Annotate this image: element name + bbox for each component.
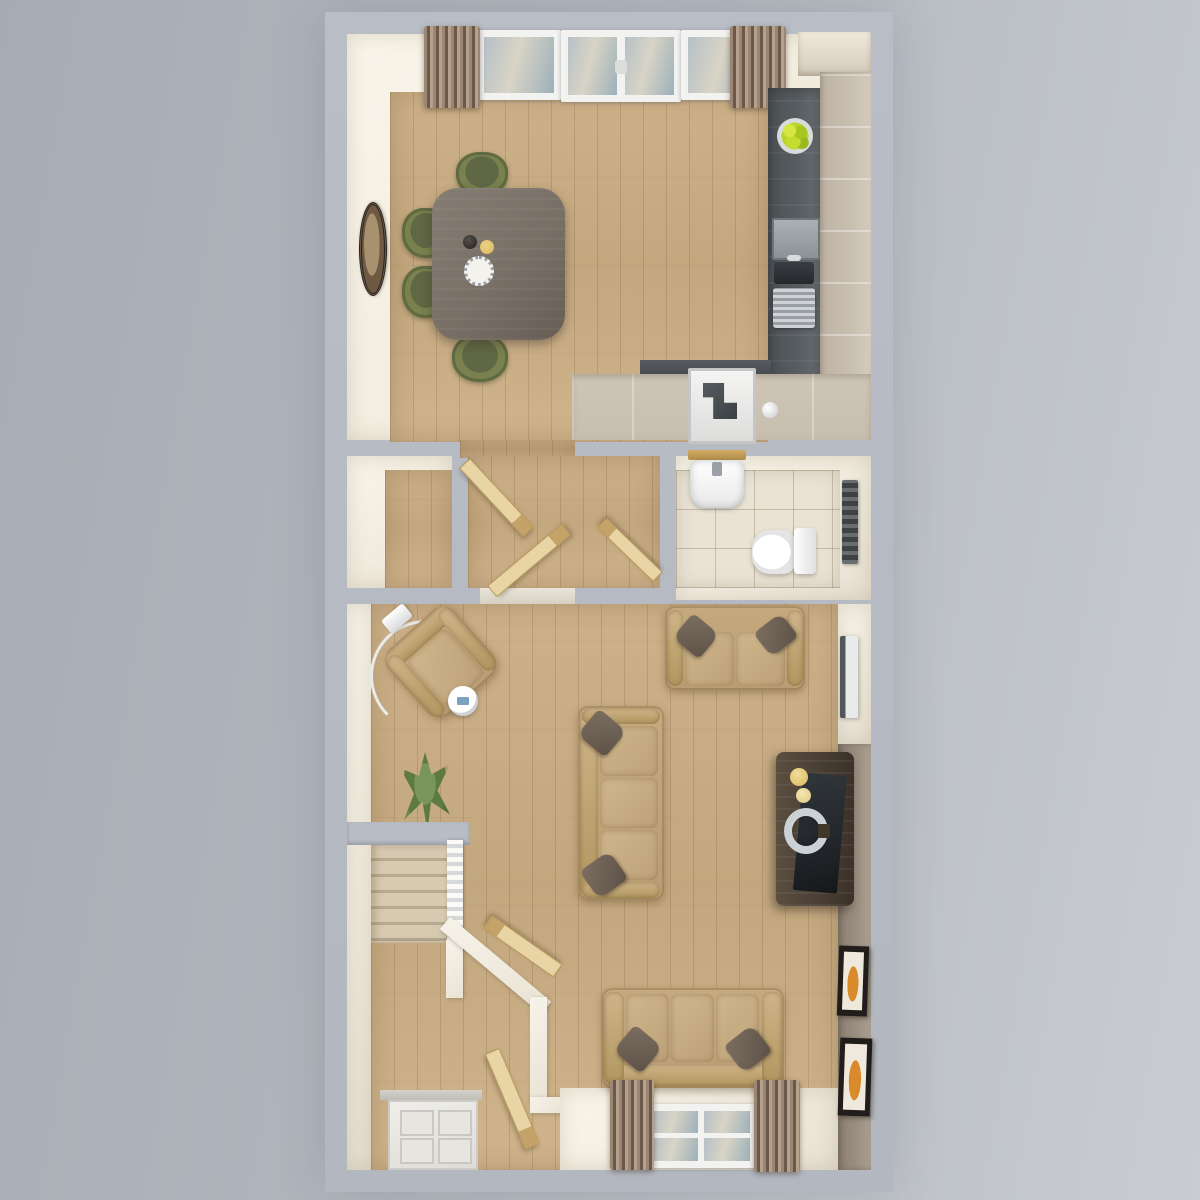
side-table <box>448 686 478 716</box>
dining-table <box>432 188 565 340</box>
curtain-top-left <box>424 26 480 108</box>
living-left-wall-face <box>347 604 371 1170</box>
patio-door-handles <box>615 60 627 74</box>
window-bottom-glass-3 <box>652 1138 698 1161</box>
front-door-panel-3 <box>400 1138 434 1164</box>
window-sofa-cushion-2 <box>671 994 714 1062</box>
faucet <box>787 255 801 261</box>
dining-chair-bottom <box>452 334 508 382</box>
window-left-glass <box>484 37 554 93</box>
floorplan <box>325 12 893 1192</box>
oven-door-handle <box>703 383 737 419</box>
living-radiator <box>840 636 858 718</box>
window-sofa-arm-left <box>604 992 624 1084</box>
curtain-bottom-left <box>610 1080 654 1170</box>
front-door-panel-1 <box>400 1110 434 1136</box>
window-sofa <box>602 988 784 1088</box>
front-door <box>388 1100 478 1170</box>
fruit-bowl <box>777 118 813 154</box>
window-left <box>477 30 561 100</box>
candle-gold-2 <box>796 788 811 803</box>
wc-basin-tap <box>712 462 722 476</box>
table-vase <box>463 235 477 249</box>
patio-door-glass-left <box>568 37 617 95</box>
kitchen-tall-unit-top <box>798 32 871 76</box>
candle-gold-1 <box>790 768 808 786</box>
center-sofa <box>578 706 664 900</box>
kettle <box>762 402 778 418</box>
front-door-threshold <box>380 1090 482 1100</box>
patio-doors <box>561 30 681 102</box>
loveseat-arm-left <box>667 610 683 686</box>
staircase <box>371 845 447 943</box>
picture-art-lower <box>843 1044 867 1111</box>
window-bottom-glass-1 <box>652 1111 698 1133</box>
table-gold-dish <box>480 240 494 254</box>
front-door-panel-4 <box>438 1138 472 1164</box>
decor-ring-gap <box>818 824 830 838</box>
toilet-cistern <box>794 528 816 574</box>
window-bottom <box>645 1104 757 1168</box>
stairs-lower-wall <box>446 940 463 998</box>
loveseat <box>665 606 805 690</box>
wc-basin <box>690 460 744 508</box>
hall-divider-stub <box>530 1097 564 1113</box>
media-console <box>776 752 854 906</box>
center-sofa-cushion-2 <box>600 778 658 828</box>
window-sofa-arm-right <box>762 992 782 1084</box>
window-bottom-glass-2 <box>704 1111 750 1133</box>
hallway-floor <box>468 456 660 588</box>
front-door-panel-2 <box>438 1110 472 1136</box>
window-bottom-glass-4 <box>704 1138 750 1161</box>
hob <box>772 218 820 260</box>
toilet-bowl <box>752 530 796 574</box>
oven <box>688 368 756 444</box>
loveseat-arm-right <box>787 610 803 686</box>
side-table-book <box>457 697 469 705</box>
table-plate <box>464 256 494 286</box>
sink-basin <box>774 262 814 284</box>
sink-drainer <box>773 288 815 328</box>
patio-door-glass-right <box>625 37 674 95</box>
picture-frame-lower <box>838 1037 873 1116</box>
hall-divider-wall <box>530 997 547 1103</box>
wc-towel-radiator <box>842 480 858 564</box>
storage-cupboard-floor <box>385 470 452 588</box>
picture-art-upper <box>842 952 864 1011</box>
wall-mirror <box>359 202 387 296</box>
wc-shelf <box>688 450 746 460</box>
curtain-bottom-right <box>754 1080 800 1172</box>
picture-frame-upper <box>837 945 869 1016</box>
